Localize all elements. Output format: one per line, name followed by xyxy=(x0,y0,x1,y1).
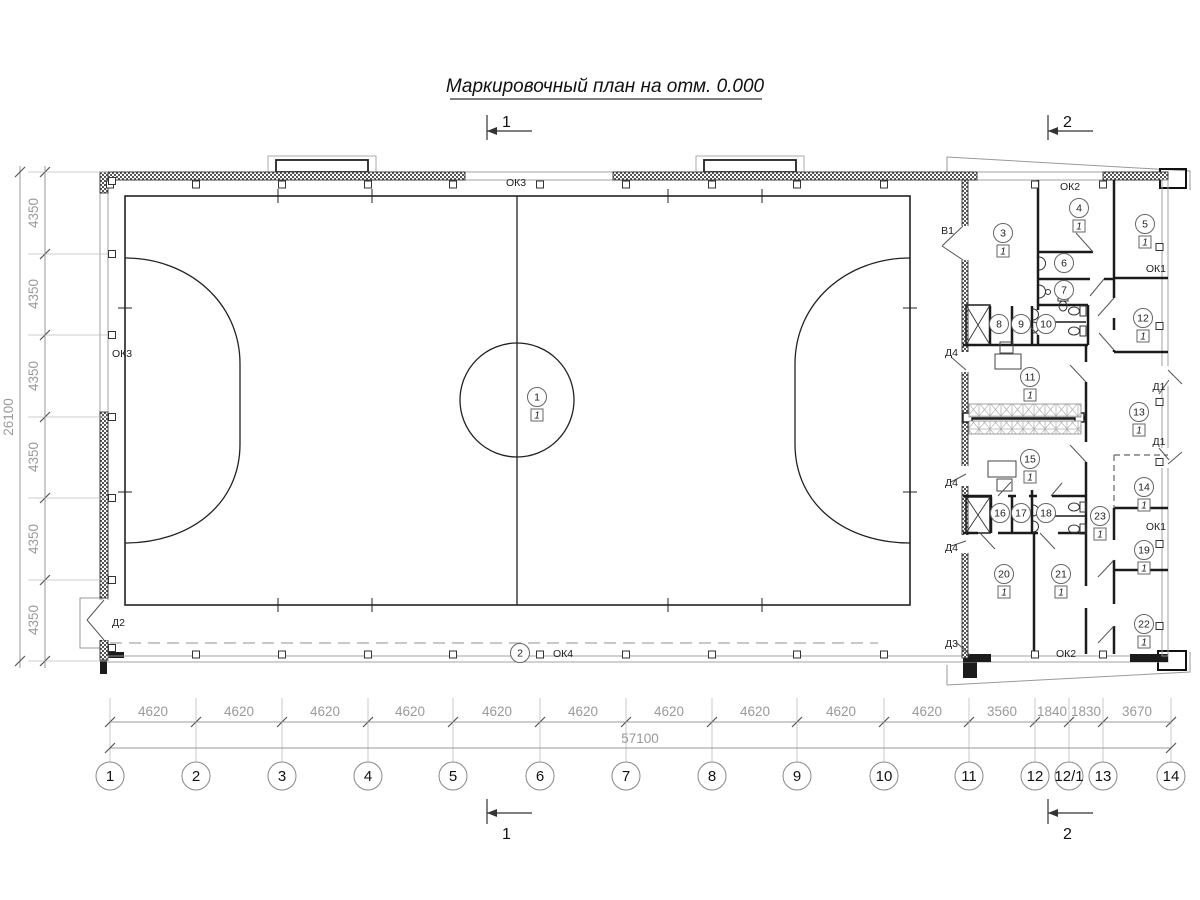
finish-tag: 1 xyxy=(1141,564,1147,575)
column-square xyxy=(193,181,200,188)
bottom-dimension-chain: 4620462046204620462046204620462046204620… xyxy=(105,698,1176,762)
canopy-top-mid-outer xyxy=(696,156,804,172)
room-number: 14 xyxy=(1138,482,1150,494)
room-number: 6 xyxy=(1061,258,1067,270)
dim-label: 4620 xyxy=(654,704,684,719)
room-number: 19 xyxy=(1138,545,1150,557)
wall-top-hatched-c xyxy=(1103,172,1168,180)
axis-bubbles: 12345678910111212/11314 xyxy=(96,762,1185,790)
finish-tag: 1 xyxy=(1141,638,1147,649)
dim-label: 4620 xyxy=(224,704,254,719)
column-square xyxy=(1156,459,1163,466)
room-number: 12 xyxy=(1137,313,1149,325)
locker-bench-row-b xyxy=(969,421,1081,434)
drawing-title: Маркировочный план на отм. 0.000 xyxy=(446,76,765,99)
room-number: 11 xyxy=(1025,372,1036,384)
sink-icon xyxy=(1039,257,1046,270)
column-square xyxy=(1156,541,1163,548)
wall-top-hatched-b xyxy=(613,172,977,180)
section-marker-2-bottom: 2 xyxy=(1048,799,1093,843)
axis-number: 13 xyxy=(1095,768,1112,785)
dim-label: 4350 xyxy=(26,361,41,391)
column-square xyxy=(881,181,888,188)
left-total-dimension-label: 26100 xyxy=(1,398,16,436)
dim-label: 4620 xyxy=(482,704,512,719)
shaft-cross xyxy=(966,305,990,345)
toilet-icon xyxy=(1069,306,1087,316)
dim-label: 3560 xyxy=(987,704,1017,719)
locker-bench-row-a xyxy=(969,404,1081,417)
column-square xyxy=(537,651,544,658)
dim-label: 4620 xyxy=(138,704,168,719)
dim-label: 4620 xyxy=(395,704,425,719)
dim-label: 4620 xyxy=(568,704,598,719)
sink-icon xyxy=(1039,285,1046,298)
opening-label: ОК2 xyxy=(1060,181,1080,193)
wall-bottom-window-band xyxy=(108,656,1168,662)
dim-label: 3670 xyxy=(1122,704,1152,719)
section-arrow-icon xyxy=(1048,127,1058,135)
desk-room15 xyxy=(988,461,1016,477)
section-number: 1 xyxy=(502,826,511,843)
room-number: 1 xyxy=(534,392,540,404)
desk-room11 xyxy=(995,354,1021,369)
drawing-sheet: Маркировочный план на отм. 0.000 1 2 1 2 xyxy=(0,0,1200,900)
opening-label: Д4 xyxy=(945,477,958,489)
room-number: 10 xyxy=(1040,319,1052,331)
column-square xyxy=(365,651,372,658)
column-square xyxy=(450,181,457,188)
column-square xyxy=(1032,181,1039,188)
column-square xyxy=(109,577,116,584)
dim-label: 4350 xyxy=(26,524,41,554)
axis-number: 14 xyxy=(1163,768,1180,785)
column-square xyxy=(794,181,801,188)
column-square xyxy=(450,651,457,658)
dim-label: 1830 xyxy=(1071,704,1101,719)
shaft-cross xyxy=(966,497,990,533)
toilet-icon xyxy=(1069,326,1087,336)
finish-tag: 1 xyxy=(1001,588,1007,599)
room-number: 3 xyxy=(1000,228,1006,240)
room-number: 5 xyxy=(1142,219,1148,231)
opening-label: Д1 xyxy=(1153,381,1166,393)
axis-number: 6 xyxy=(536,768,544,785)
dim-label: 4350 xyxy=(26,442,41,472)
column-square xyxy=(794,651,801,658)
shaft-bottom xyxy=(966,497,990,533)
column-square xyxy=(109,495,116,502)
page-title: Маркировочный план на отм. 0.000 xyxy=(446,76,765,97)
floor-plan-svg: Маркировочный план на отм. 0.000 1 2 1 2 xyxy=(0,0,1200,900)
finish-tag: 1 xyxy=(1136,426,1142,437)
opening-label: В1 xyxy=(941,225,954,237)
opening-label: ОК4 xyxy=(553,648,573,660)
axis-number: 12/1 xyxy=(1054,768,1083,785)
opening-label: ОК1 xyxy=(1146,521,1166,533)
finish-tag: 1 xyxy=(1076,222,1082,233)
room-number: 8 xyxy=(996,319,1002,331)
sink-icon xyxy=(1033,309,1039,320)
finish-tag: 1 xyxy=(1141,501,1147,512)
column-square xyxy=(1156,623,1163,630)
finish-tag: 1 xyxy=(1142,238,1148,249)
wall-left-hatched-b xyxy=(100,412,108,598)
sink-icon xyxy=(1033,521,1039,532)
opening-v1 xyxy=(960,226,970,260)
axis-number: 3 xyxy=(278,768,286,785)
finish-tag: 1 xyxy=(1058,588,1064,599)
axis-number: 12 xyxy=(1027,768,1044,785)
section-number: 2 xyxy=(1063,826,1072,843)
canopy-top-left-inner xyxy=(276,160,368,172)
section-marker-1-bottom: 1 xyxy=(487,799,532,843)
room-number: 15 xyxy=(1024,454,1036,466)
section-number: 1 xyxy=(502,114,511,131)
room-number: 22 xyxy=(1138,619,1150,631)
canopy-top-left-outer xyxy=(268,156,376,172)
dim-label: 4350 xyxy=(26,605,41,635)
section-arrow-icon xyxy=(487,809,497,817)
column-square xyxy=(1100,181,1107,188)
section-arrow-icon xyxy=(487,127,497,135)
opening-label: Д3 xyxy=(945,638,958,650)
column-square xyxy=(1100,651,1107,658)
column-square xyxy=(881,651,888,658)
room-number: 2 xyxy=(517,648,523,660)
left-dimension-chain: 435043504350435043504350 xyxy=(26,167,108,666)
column-square xyxy=(365,181,372,188)
axis-number: 7 xyxy=(622,768,630,785)
column-square xyxy=(109,414,116,421)
axis-number: 9 xyxy=(793,768,801,785)
room-number: 18 xyxy=(1040,508,1052,520)
dim-label: 4620 xyxy=(310,704,340,719)
column-square xyxy=(109,178,116,185)
section-marker-1-top: 1 xyxy=(487,114,532,140)
wall-top-hatched-a xyxy=(100,172,465,180)
opening-label: Д4 xyxy=(945,347,958,359)
room-number: 20 xyxy=(998,569,1010,581)
field-left-penalty-arc xyxy=(125,258,240,543)
column-square xyxy=(1156,244,1163,251)
column-square xyxy=(709,181,716,188)
shaft-top xyxy=(966,305,990,345)
room-number: 23 xyxy=(1094,511,1106,523)
column-square xyxy=(1032,651,1039,658)
room-number: 17 xyxy=(1015,508,1027,520)
column-square xyxy=(537,181,544,188)
column-square xyxy=(109,332,116,339)
total-dimension-label: 57100 xyxy=(621,731,659,746)
column-square xyxy=(279,181,286,188)
room-number: 9 xyxy=(1018,319,1024,331)
axis-number: 8 xyxy=(708,768,716,785)
column-square xyxy=(1156,399,1163,406)
finish-tag: 1 xyxy=(1000,247,1006,258)
wall-left-hatched-c xyxy=(100,640,108,660)
room-number: 4 xyxy=(1076,203,1082,215)
section-arrow-icon xyxy=(1048,809,1058,817)
wall-right-window-band xyxy=(1162,180,1168,656)
axis-number: 11 xyxy=(961,768,977,785)
finish-tag: 1 xyxy=(1140,332,1146,343)
door-swings-and-leaders xyxy=(87,226,1182,655)
opening-label: Д1 xyxy=(1153,436,1166,448)
dim-label: 1840 xyxy=(1037,704,1067,719)
toilet-icon xyxy=(1069,502,1087,512)
finish-tag: 1 xyxy=(534,411,540,422)
drain-icon xyxy=(1046,290,1051,295)
column-square xyxy=(109,251,116,258)
axis-number: 4 xyxy=(364,768,372,785)
opening-label: Д4 xyxy=(945,542,958,554)
section-marker-2-top: 2 xyxy=(1048,114,1093,140)
dim-label: 4620 xyxy=(912,704,942,719)
axis-number: 2 xyxy=(192,768,200,785)
canopy-top-mid-inner xyxy=(704,160,796,172)
opening-label: ОК3 xyxy=(112,348,132,360)
dim-label: 4620 xyxy=(826,704,856,719)
axis-number: 5 xyxy=(449,768,457,785)
dim-label: 4620 xyxy=(740,704,770,719)
column-square xyxy=(709,651,716,658)
opening-d2 xyxy=(98,600,110,640)
dim-label: 4350 xyxy=(26,279,41,309)
opening-label: ОК3 xyxy=(506,177,526,189)
sports-field xyxy=(118,189,917,612)
opening-d4-c xyxy=(960,535,970,553)
opening-label: ОК1 xyxy=(1146,263,1166,275)
column-square xyxy=(623,181,630,188)
finish-tag: 1 xyxy=(1097,530,1103,541)
column-square xyxy=(109,645,116,652)
opening-label: ОК2 xyxy=(1056,648,1076,660)
finish-tag: 1 xyxy=(1027,473,1033,484)
column-square xyxy=(193,651,200,658)
column-square xyxy=(623,651,630,658)
room-number: 13 xyxy=(1133,407,1145,419)
room-number: 21 xyxy=(1055,569,1067,581)
axis-number: 10 xyxy=(876,768,893,785)
opening-label: Д2 xyxy=(112,617,125,629)
room-number: 7 xyxy=(1061,285,1067,297)
column-square xyxy=(279,651,286,658)
room-number: 16 xyxy=(994,508,1006,520)
field-right-penalty-arc xyxy=(795,258,910,543)
dim-label: 4350 xyxy=(26,198,41,228)
axis-number: 1 xyxy=(106,768,114,785)
section-number: 2 xyxy=(1063,114,1072,131)
finish-tag: 1 xyxy=(1027,391,1033,402)
column-square xyxy=(1156,323,1163,330)
